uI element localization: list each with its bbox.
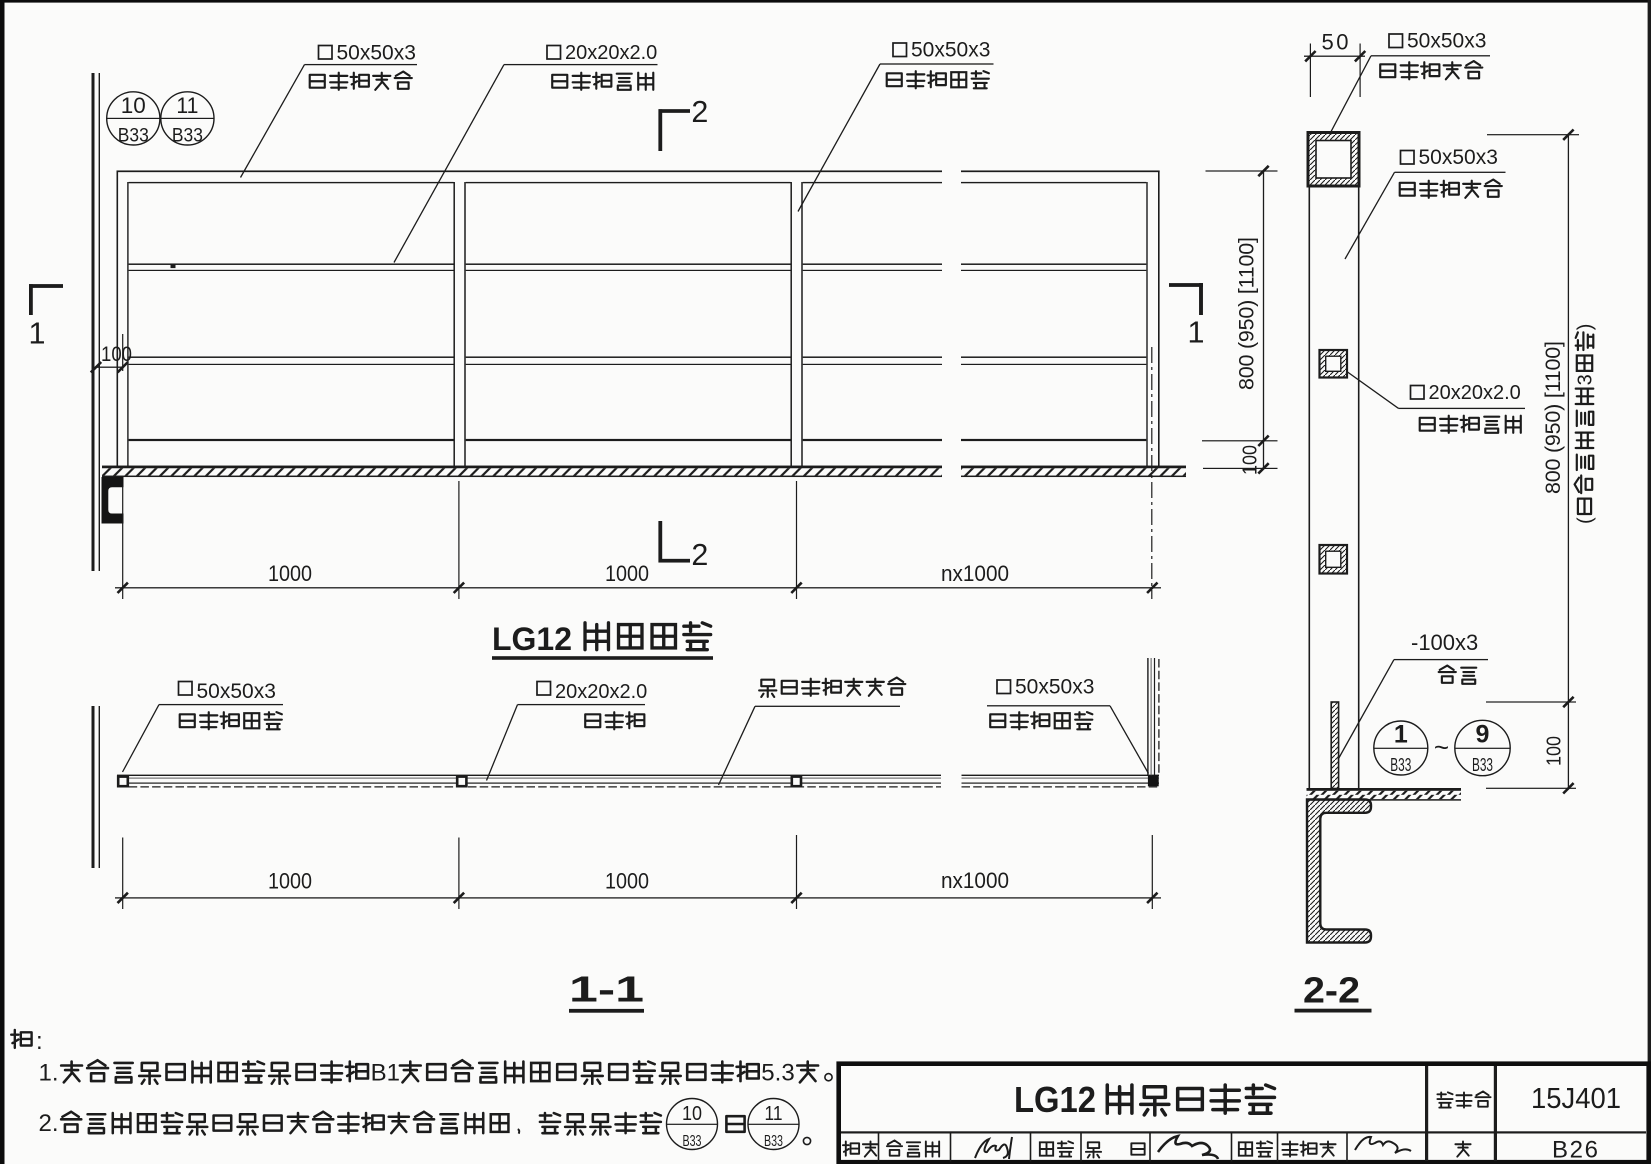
svg-text:B33: B33	[1472, 755, 1493, 775]
svg-text:nx1000: nx1000	[941, 868, 1009, 893]
svg-text:20x20x2.0: 20x20x2.0	[555, 681, 647, 703]
svg-text:2-2: 2-2	[1303, 970, 1360, 1011]
svg-text:-100x3: -100x3	[1411, 630, 1478, 655]
svg-text:(: (	[1575, 517, 1597, 524]
svg-text:10: 10	[121, 93, 146, 118]
svg-text:): )	[1575, 324, 1597, 331]
svg-text:1000: 1000	[605, 869, 649, 894]
svg-text:100: 100	[101, 343, 132, 366]
svg-text:1000: 1000	[268, 561, 312, 586]
svg-text:100: 100	[1240, 445, 1262, 475]
svg-text:3: 3	[1575, 374, 1597, 385]
svg-text:1: 1	[1188, 316, 1205, 350]
svg-text:B33: B33	[172, 126, 203, 147]
svg-text:5.3: 5.3	[761, 1059, 794, 1086]
svg-text:50x50x3: 50x50x3	[1015, 676, 1094, 699]
svg-text:50x50x3: 50x50x3	[911, 39, 990, 62]
svg-text:1000: 1000	[268, 869, 312, 894]
svg-text:9: 9	[1476, 721, 1490, 749]
svg-text:15J401: 15J401	[1531, 1083, 1621, 1115]
svg-text:B1: B1	[371, 1059, 400, 1086]
svg-text:800 (950) [1100]: 800 (950) [1100]	[1235, 237, 1259, 390]
svg-text:50x50x3: 50x50x3	[1407, 30, 1486, 53]
svg-text:50x50x3: 50x50x3	[1419, 146, 1498, 169]
svg-text:1000: 1000	[605, 561, 649, 586]
svg-text:nx1000: nx1000	[941, 561, 1009, 586]
svg-text:B33: B33	[764, 1133, 783, 1150]
svg-text:B26: B26	[1552, 1137, 1598, 1164]
svg-text:11: 11	[765, 1103, 783, 1125]
svg-text:50x50x3: 50x50x3	[337, 42, 416, 65]
svg-text:20x20x2.0: 20x20x2.0	[565, 42, 657, 64]
svg-text:B33: B33	[1390, 755, 1411, 775]
svg-text:LG12: LG12	[492, 621, 572, 657]
svg-text::: :	[36, 1028, 43, 1055]
svg-text:B33: B33	[683, 1133, 702, 1150]
svg-text:LG12: LG12	[1014, 1079, 1096, 1120]
svg-text:10: 10	[682, 1103, 702, 1125]
svg-text:50x50x3: 50x50x3	[197, 680, 276, 703]
svg-text:2.: 2.	[39, 1110, 59, 1137]
svg-text:800 (950) [1100]: 800 (950) [1100]	[1541, 341, 1565, 494]
svg-text:2: 2	[691, 95, 708, 129]
svg-text:100: 100	[1544, 736, 1566, 766]
svg-text:1.: 1.	[39, 1059, 59, 1086]
svg-text:2: 2	[691, 538, 708, 572]
svg-text:1: 1	[29, 317, 46, 351]
svg-text:~: ~	[1434, 732, 1449, 762]
svg-text:1-1: 1-1	[569, 969, 644, 1010]
svg-text:B33: B33	[118, 126, 149, 147]
svg-text:11: 11	[176, 93, 198, 118]
svg-text:1: 1	[1394, 721, 1408, 749]
svg-text:20x20x2.0: 20x20x2.0	[1429, 382, 1521, 404]
